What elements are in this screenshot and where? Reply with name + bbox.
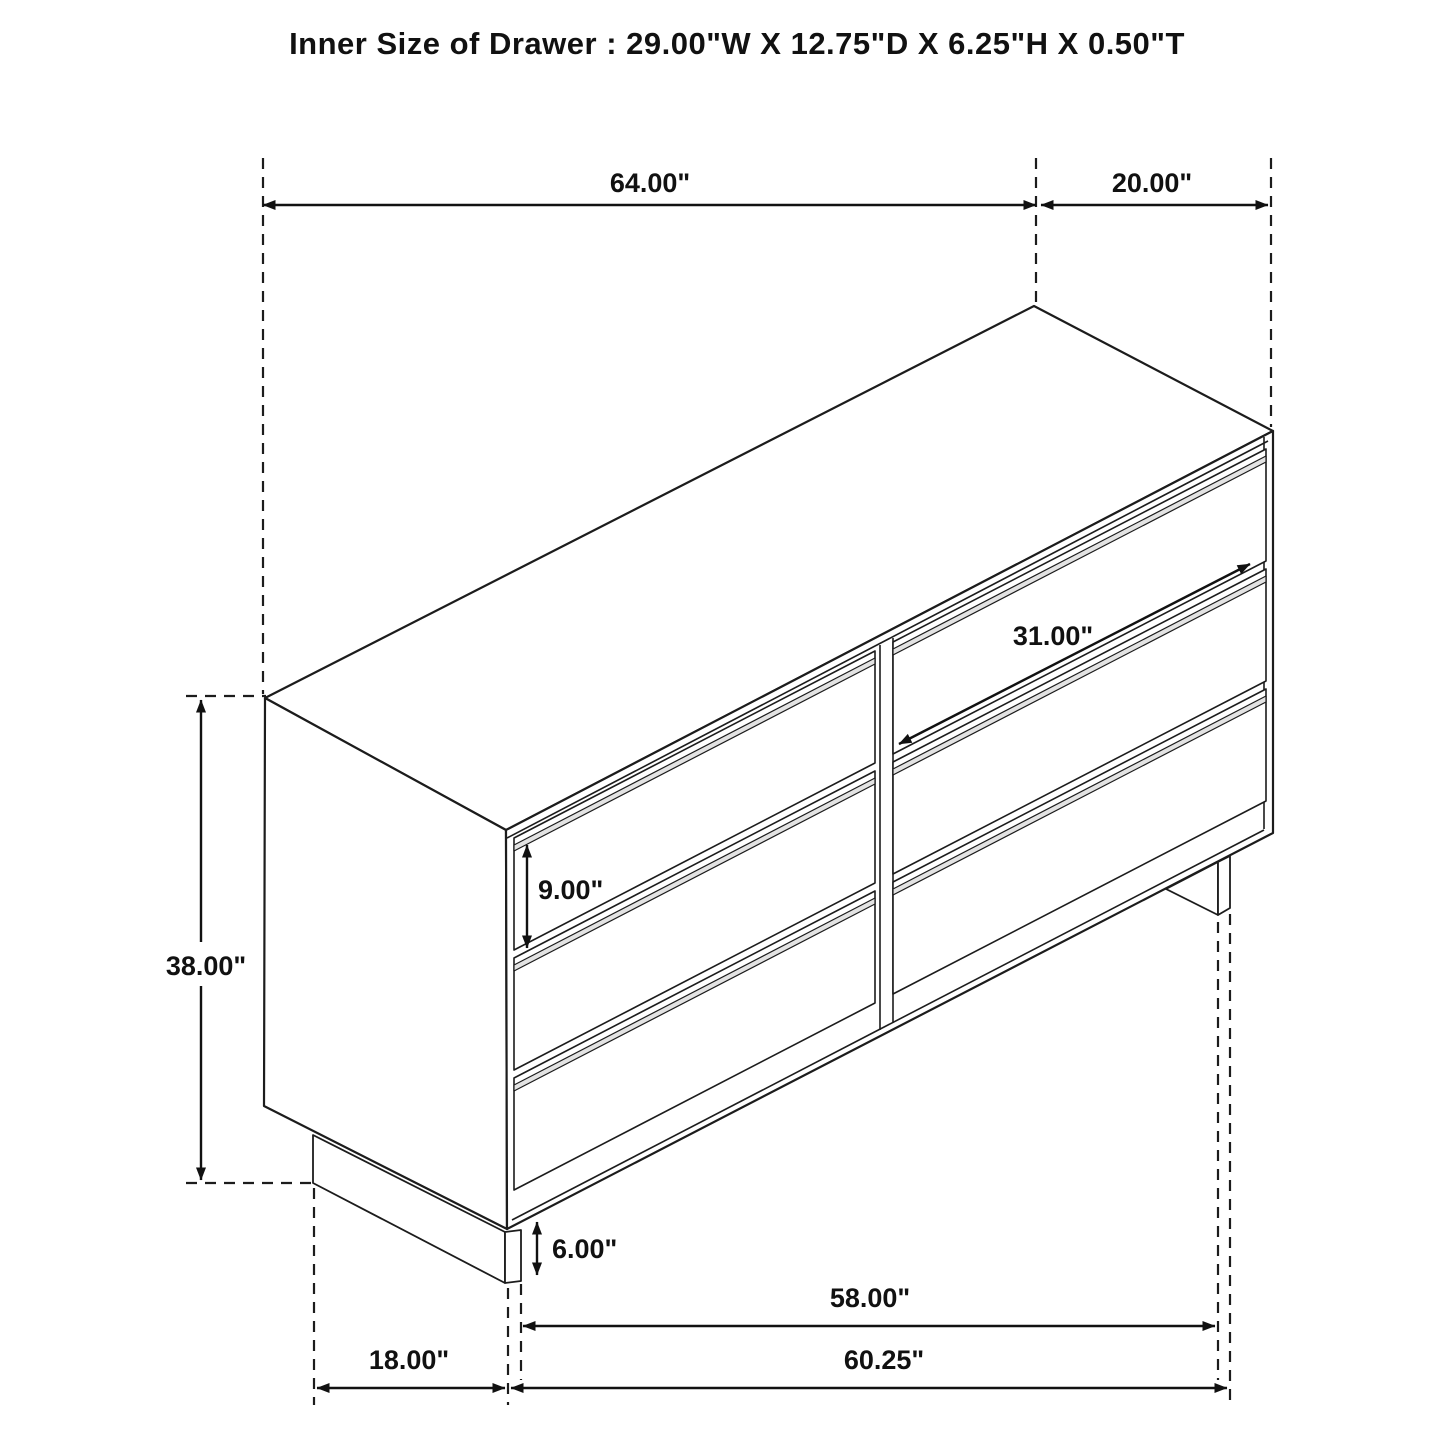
dim-top-width-label: 64.00": [610, 168, 690, 198]
dim-drawer-width-label: 31.00": [1013, 621, 1093, 651]
plinth-right-leg: [1218, 856, 1230, 915]
diagram-title: Inner Size of Drawer : 29.00"W X 12.75"D…: [289, 26, 1185, 61]
plinth-front-left-corner: [505, 1230, 521, 1283]
dim-base-inner-span-label: 58.00": [830, 1283, 910, 1313]
dim-depth-label: 20.00": [1112, 168, 1192, 198]
dim-base-width-label: 60.25": [844, 1345, 924, 1375]
diagram-svg: Inner Size of Drawer : 29.00"W X 12.75"D…: [0, 0, 1445, 1445]
dim-base-height-label: 6.00": [552, 1234, 617, 1264]
dresser-dimension-diagram: Inner Size of Drawer : 29.00"W X 12.75"D…: [0, 0, 1445, 1445]
dim-height-label: 38.00": [166, 951, 246, 981]
dim-drawer-height-label: 9.00": [538, 875, 603, 905]
dim-base-depth-label: 18.00": [369, 1345, 449, 1375]
